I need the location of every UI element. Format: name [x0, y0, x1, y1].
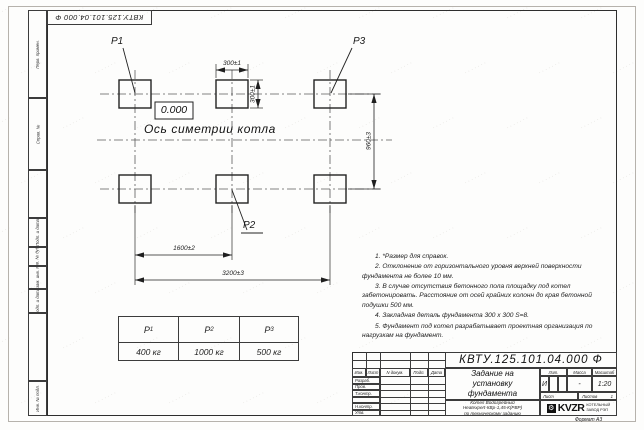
loads-table-value-p1: 400 кг: [118, 342, 179, 361]
lit-value: И: [540, 376, 549, 392]
lit-cell-2: [549, 376, 558, 392]
margin-cell-empty-2: [28, 313, 47, 381]
dim-row-spacing: 960±3: [366, 132, 373, 150]
loads-table-header-p3: P3: [239, 316, 299, 343]
title-grid-line: [380, 384, 445, 385]
lit-cell-3: [558, 376, 567, 392]
scale-value: 1:20: [592, 376, 617, 392]
pad-label-p1: P1: [111, 36, 123, 47]
dim-pad-width: 300±1: [214, 60, 250, 67]
mass-header: Масса: [567, 368, 592, 376]
margin-cell-podp-data-2: Подп. и дата: [28, 289, 47, 313]
margin-cell-vzam-inv: Взам. инв. №: [28, 266, 47, 289]
title-grid-line: [380, 397, 445, 398]
loads-table-header-p2: P2: [178, 316, 240, 343]
drawing-sheet: ⋅⋅⋅⋅⋅⋅⋅⋅⋅⋅⋅⋅⋅⋅⋅⋅⋅⋅⋅⋅⋅⋅⋅⋅⋅⋅⋅⋅⋅⋅⋅⋅⋅⋅⋅⋅⋅⋅⋅⋅…: [0, 0, 644, 430]
product-description: Котел Водогрейный Heatexpert-КВр-1,45-К(…: [445, 400, 540, 416]
dim-total-spacing: 3200±3: [211, 270, 255, 277]
inverted-docnumber-text: КВТУ.125.101.04.000 Ф: [55, 13, 143, 22]
symmetry-axis-label: Ось симетрии котла: [144, 122, 276, 136]
margin-cell-perv-primen: Перв. примен.: [28, 10, 47, 98]
note-3: 3. В случае отсутствия бетонного пола пл…: [362, 282, 616, 310]
inverted-docnumber-box: КВТУ.125.101.04.000 Ф: [47, 10, 152, 25]
gear-icon: ⚙: [547, 404, 556, 413]
col-ndokum: N докум.: [380, 368, 410, 377]
margin-cell-empty-1: [28, 170, 47, 218]
loads-table-value-p3: 500 кг: [239, 342, 299, 361]
logo-text: KVZR: [558, 402, 585, 414]
titleblock-docnumber: КВТУ.125.101.04.000 Ф: [445, 352, 617, 368]
sheet-number-cell: Лист: [540, 392, 578, 400]
col-list: Лист: [366, 368, 380, 377]
staff-utv: Утв.: [352, 410, 380, 417]
elevation-mark: 0.000: [156, 104, 192, 116]
pad-label-p3: P3: [353, 36, 365, 47]
note-4: 4. Закладная деталь фундамента 300 x 300…: [362, 311, 616, 320]
margin-cell-podp-data-1: Подп. и дата: [28, 218, 47, 247]
scale-header: Масштаб: [592, 368, 617, 376]
loads-table-value-p2: 1000 кг: [178, 342, 240, 361]
dim-mid-spacing: 1600±2: [163, 245, 205, 252]
sheets-total-cell: Листов 1: [578, 392, 617, 400]
company-logo-cell: ⚙ KVZR КОТЕЛЬНЫЙ ЗАВОД РЭП: [540, 400, 617, 416]
title-grid-line: [380, 403, 445, 404]
title-grid-line: [380, 390, 445, 391]
format-label: Формат А3: [560, 417, 617, 423]
pad-label-p2: P2: [243, 220, 255, 231]
document-title: Задание на установку фундамента: [445, 368, 540, 400]
margin-cell-inv-podl: Инв. № подл.: [28, 381, 47, 416]
margin-cell-sprav-n: Справ. №: [28, 98, 47, 170]
loads-table-header-p1: P1: [118, 316, 179, 343]
col-podp: Подп.: [410, 368, 428, 377]
title-grid-line: [380, 410, 445, 411]
dim-pad-height: 300±1: [250, 85, 257, 103]
logo-caption: КОТЕЛЬНЫЙ ЗАВОД РЭП: [586, 403, 610, 412]
mass-value: -: [567, 376, 592, 392]
margin-cell-inv-dubl: Инв. № дубл.: [28, 247, 47, 266]
note-2: 2. Отклонение от горизонтального уровня …: [362, 262, 616, 281]
lit-header: Лит.: [540, 368, 567, 376]
col-data: Дата: [428, 368, 445, 377]
title-grid-line: [352, 360, 445, 361]
note-1: 1. *Размер для справок.: [362, 252, 616, 261]
notes-block: 1. *Размер для справок. 2. Отклонение от…: [362, 252, 616, 341]
note-5: 5. Фундамент под котел разрабатывает про…: [362, 322, 616, 341]
col-izm: Изм.: [352, 368, 366, 377]
